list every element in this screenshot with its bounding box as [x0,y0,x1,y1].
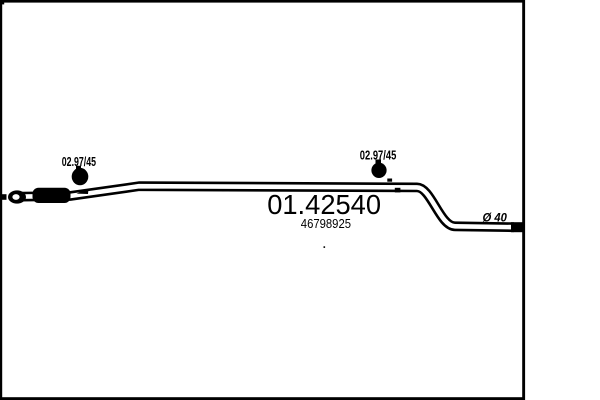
svg-text:02.97/45: 02.97/45 [360,148,397,162]
svg-text:Ø 40: Ø 40 [483,211,508,225]
svg-text:46798925: 46798925 [301,216,351,231]
svg-text:02.97/45: 02.97/45 [62,155,96,169]
